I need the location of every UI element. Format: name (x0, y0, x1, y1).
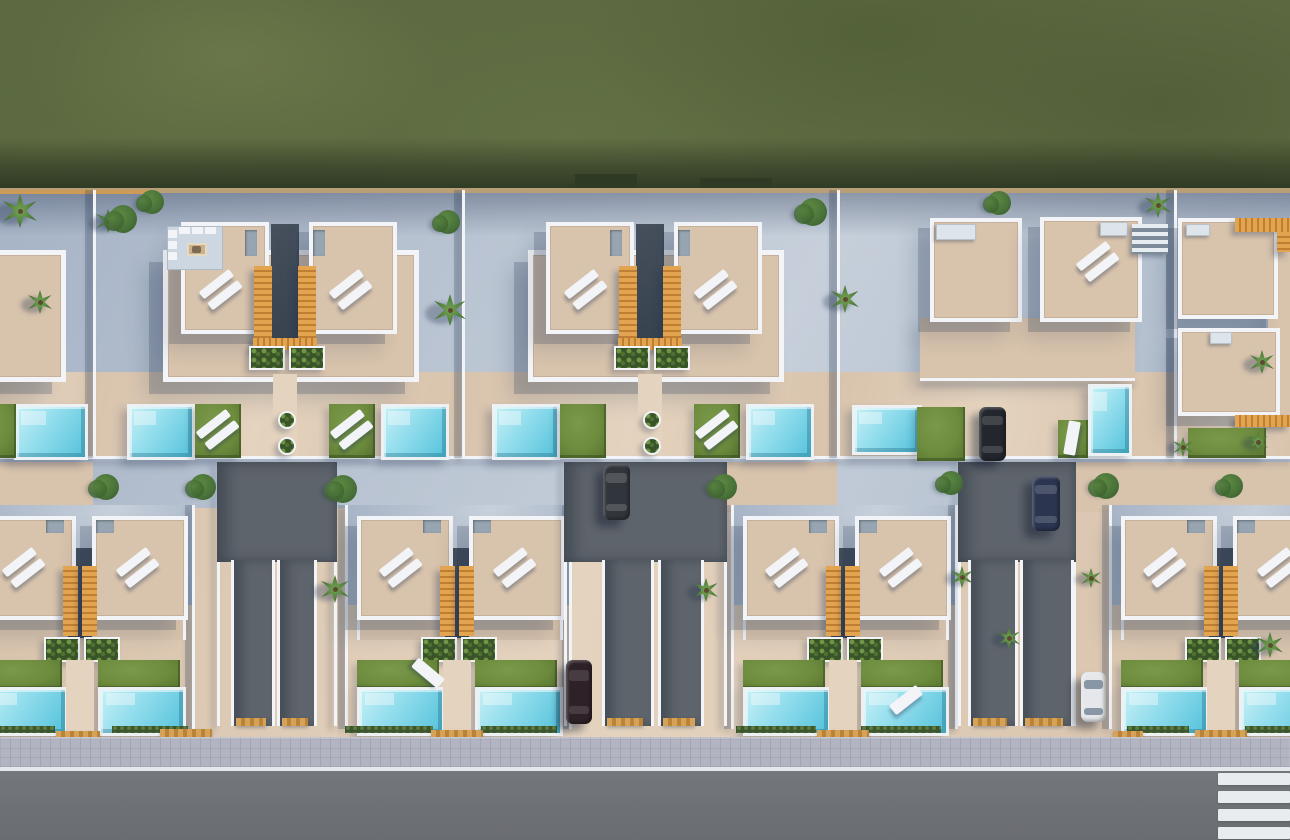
stairwell-gap (636, 224, 664, 348)
rooftop-stairs (845, 566, 860, 636)
rooftop-equipment (1210, 332, 1232, 344)
dropped-kerb (663, 718, 695, 726)
car-glass (606, 504, 627, 511)
stairhead-slot (809, 520, 827, 533)
planter-box (249, 346, 285, 370)
car-glass (1084, 708, 1103, 715)
palm-trunk-dot (1181, 445, 1186, 450)
garden-lawn (0, 404, 16, 458)
driveway-lane (1020, 560, 1074, 726)
driveway-court (564, 462, 727, 562)
stairhead-slot (96, 520, 114, 533)
dropped-kerb (1025, 718, 1063, 726)
front-hedge (481, 726, 557, 733)
rooftop-stairs (1277, 232, 1290, 252)
swimming-pool (852, 405, 922, 455)
entry-walkway (443, 660, 471, 736)
kitchen-seat (168, 252, 177, 260)
palm-trunk-dot (704, 588, 709, 593)
kitchen-seat (168, 241, 177, 249)
stairhead-slot (313, 230, 325, 256)
rooftop-stairs (459, 566, 474, 636)
stairwell-gap (271, 224, 299, 348)
swimming-pool (14, 404, 88, 460)
palm-trunk-dot (1007, 636, 1012, 641)
entry-walkway (66, 660, 94, 736)
palm-trunk-dot (448, 308, 453, 313)
rooftop-stairs (63, 566, 78, 636)
back-wall (0, 188, 1290, 193)
garden-lawn (1121, 660, 1203, 689)
driveway-court (217, 462, 337, 562)
crosswalk-stripe (1218, 791, 1290, 803)
walkway-planter (278, 437, 296, 455)
sidewalk (0, 737, 1290, 767)
rooftop-stairs-landing (1235, 218, 1290, 232)
front-hedge (861, 726, 941, 733)
stairhead-slot (859, 520, 877, 533)
villa-terrace (0, 250, 66, 382)
planter-box (847, 637, 883, 662)
palm-trunk-dot (1268, 643, 1273, 648)
tree-icon (1219, 474, 1243, 498)
garden-lawn (743, 660, 825, 689)
front-hedge (736, 726, 816, 733)
planter-box (421, 637, 457, 662)
dropped-kerb (817, 730, 869, 737)
walkway-planter (278, 411, 296, 429)
driveway-lane (231, 560, 275, 726)
garden-lawn (1239, 660, 1290, 689)
rooftop-stairs (826, 566, 841, 636)
stairhead-slot (245, 230, 257, 256)
tree-icon (93, 474, 119, 500)
palm-trunk-dot (1260, 360, 1265, 365)
dropped-kerb (282, 718, 308, 726)
car (1081, 672, 1106, 722)
rooftop-stairs (82, 566, 97, 636)
kitchen-grill (192, 246, 201, 253)
driveway-lane (277, 560, 317, 726)
swimming-pool (381, 404, 449, 460)
palm-trunk-dot (960, 575, 965, 580)
palm-trunk-dot (18, 209, 23, 214)
asphalt-road (0, 771, 1290, 840)
walkway-planter (643, 437, 661, 455)
car-glass (1084, 680, 1103, 689)
front-hedge (345, 726, 433, 733)
garden-lawn (98, 660, 180, 689)
rooftop-stairs (1204, 566, 1219, 636)
garden-lawn (0, 660, 62, 689)
tree-icon (329, 475, 357, 503)
planter-box (84, 637, 120, 662)
palm-trunk-dot (1256, 440, 1261, 445)
lot-wall (345, 505, 348, 729)
dropped-kerb (431, 730, 483, 737)
dropped-kerb (1195, 730, 1247, 737)
stairhead-slot (1237, 520, 1255, 533)
lot-wall-shadow (338, 505, 345, 729)
terrace-wall (920, 378, 1135, 381)
crosswalk-stripe (1218, 773, 1290, 785)
tree-icon (987, 191, 1011, 215)
rooftop-stairs (1223, 566, 1238, 636)
entry-walkway (1207, 660, 1235, 736)
lot-wall (462, 190, 465, 458)
planter-box (1185, 637, 1221, 662)
garden-lawn (917, 407, 965, 461)
rooftop-equipment (1100, 222, 1128, 236)
kitchen-counter (205, 227, 216, 234)
kitchen-counter (192, 227, 203, 234)
tree-icon (140, 190, 164, 214)
planter-box (807, 637, 843, 662)
rooftop-equipment (1186, 224, 1210, 236)
planter-box (461, 637, 497, 662)
garden-lawn (475, 660, 557, 689)
swimming-pool (746, 404, 814, 460)
walkway-planter (643, 411, 661, 429)
planter-box (654, 346, 690, 370)
car-glass (982, 416, 1003, 425)
lot-wall (1109, 505, 1112, 729)
driveway-lane (602, 560, 654, 726)
swimming-pool (1088, 384, 1132, 456)
tree-icon (939, 471, 963, 495)
rooftop-stairs (440, 566, 455, 636)
palm-trunk-dot (1089, 576, 1094, 581)
swimming-pool (127, 404, 195, 460)
aerial-development-render (0, 0, 1290, 840)
front-hedge (1245, 726, 1290, 733)
entry-walkway (829, 660, 857, 736)
car-glass (606, 473, 627, 483)
lot-wall (1174, 190, 1177, 458)
tree-icon (799, 198, 827, 226)
palm-trunk-dot (38, 300, 43, 305)
planter-box (289, 346, 325, 370)
lot-wall (731, 505, 734, 729)
car-glass (1035, 485, 1057, 494)
front-hedge (0, 726, 55, 733)
external-staircase (1132, 224, 1168, 254)
stairhead-slot (46, 520, 64, 533)
kitchen-seat (168, 230, 177, 238)
stairhead-slot (610, 230, 622, 256)
planter-box (44, 637, 80, 662)
rooftop-equipment (936, 224, 976, 240)
car (979, 407, 1006, 461)
car (603, 464, 630, 520)
tree-icon (1093, 473, 1119, 499)
crosswalk-stripe (1218, 827, 1290, 839)
tree-icon (190, 474, 216, 500)
car (566, 660, 592, 724)
lot-wall (192, 505, 195, 729)
field-edge-shadow (0, 138, 1290, 190)
stairhead-slot (678, 230, 690, 256)
tree-icon (436, 210, 460, 234)
tree-icon (109, 205, 137, 233)
tree-icon (711, 474, 737, 500)
kitchen-counter (179, 227, 190, 234)
car-glass (1035, 516, 1057, 523)
stairhead-slot (473, 520, 491, 533)
dropped-kerb (607, 718, 643, 726)
lot-wall-shadow (829, 190, 837, 458)
crosswalk-stripe (1218, 809, 1290, 821)
car-glass (982, 446, 1003, 453)
car-glass (569, 670, 589, 681)
stairhead-slot (423, 520, 441, 533)
back-wall-accent (0, 190, 150, 194)
garden-lawn (560, 404, 606, 458)
garden-lawn (861, 660, 943, 689)
dropped-kerb (973, 718, 1007, 726)
lot-wall (837, 190, 840, 458)
palm-trunk-dot (843, 297, 848, 302)
planter-box (614, 346, 650, 370)
car (1032, 476, 1060, 531)
stairhead-slot (1187, 520, 1205, 533)
dropped-kerb (236, 718, 266, 726)
villa-terrace (920, 318, 1135, 380)
car-glass (569, 706, 589, 714)
dropped-kerb (160, 729, 212, 737)
swimming-pool (492, 404, 560, 460)
palm-trunk-dot (1156, 203, 1161, 208)
rooftop-stairs-landing (1235, 415, 1290, 427)
palm-trunk-dot (333, 587, 338, 592)
